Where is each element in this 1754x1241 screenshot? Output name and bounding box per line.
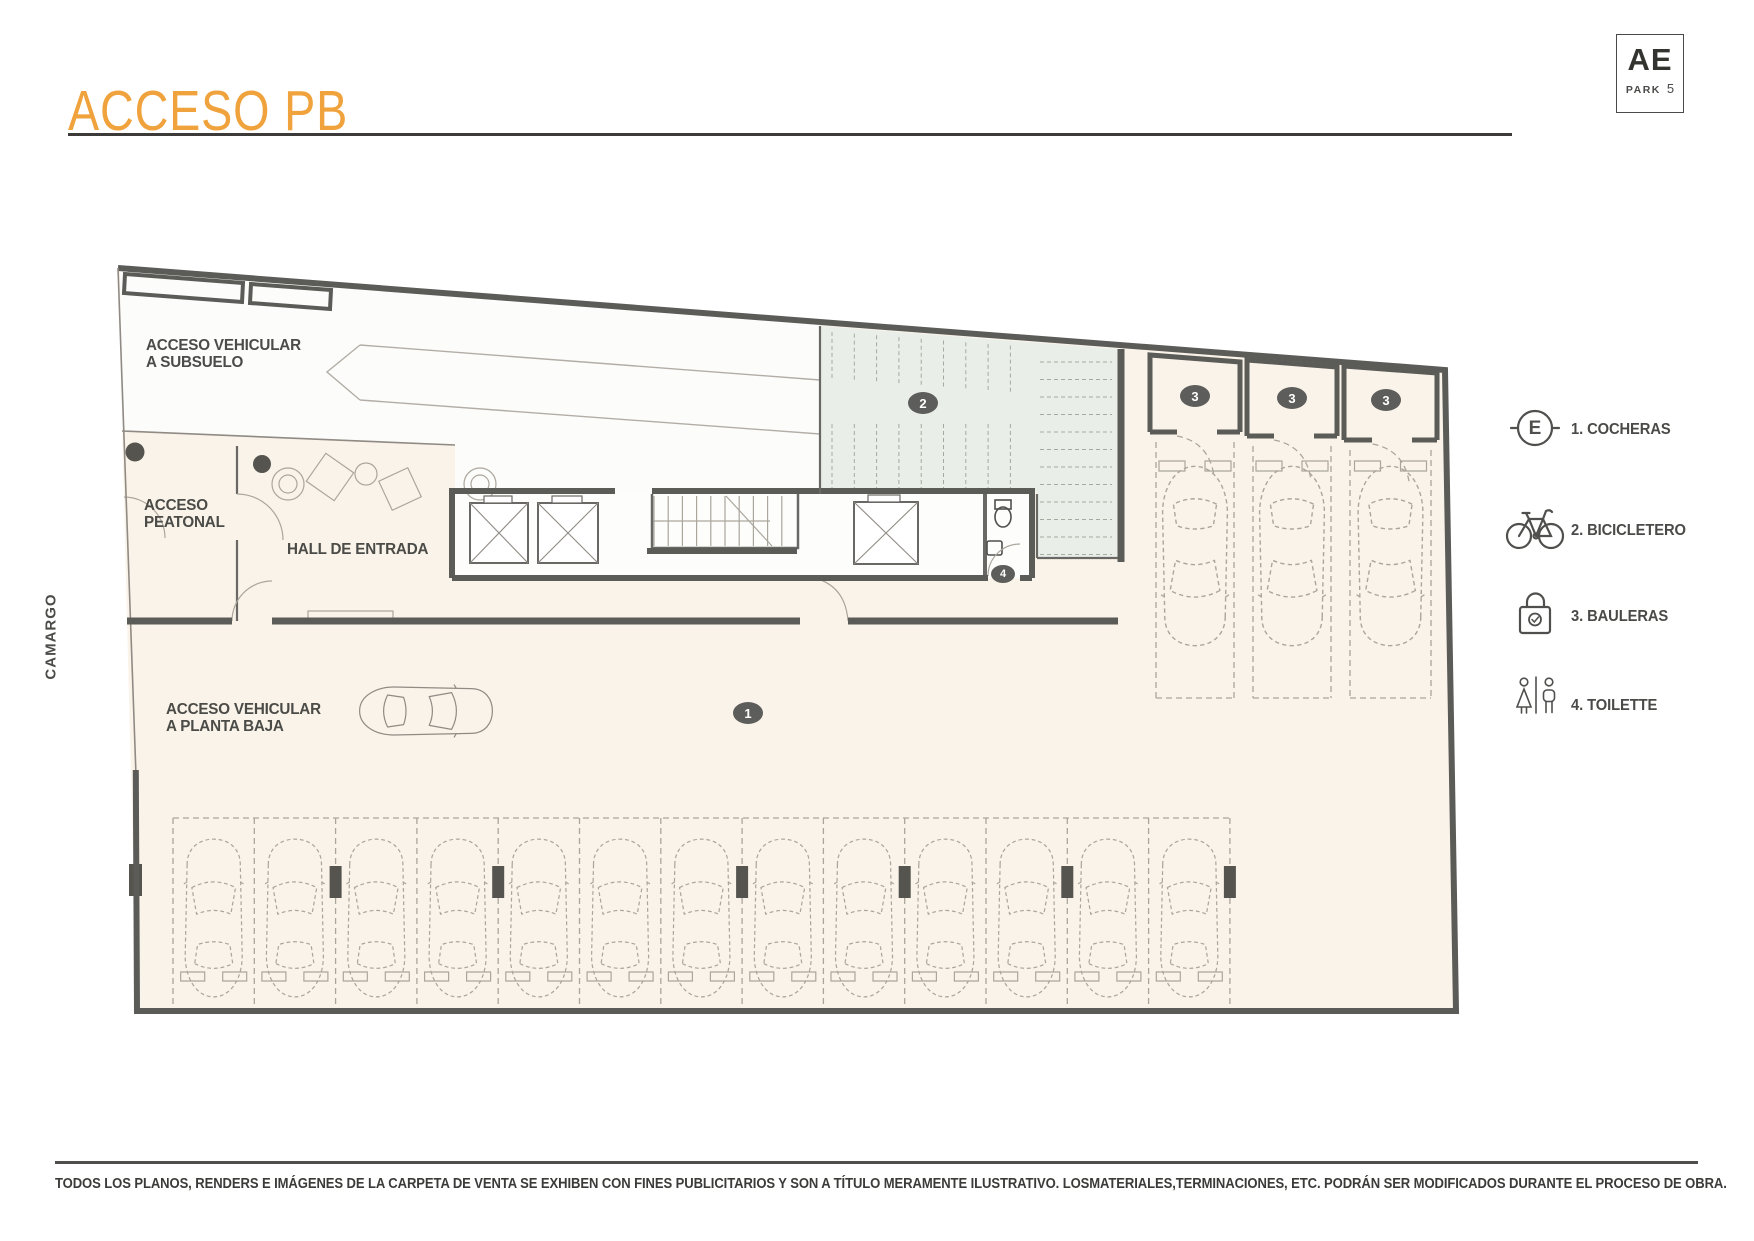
elevator-e-letter: E (1518, 417, 1552, 440)
badge-baulera: 3 (1371, 389, 1401, 411)
plan-label-ramp: ACCESO VEHICULAR A SUBSUELO (146, 337, 301, 372)
round-column (126, 443, 145, 462)
plan-label-hall: HALL DE ENTRADA (287, 541, 428, 558)
legend-item-bicicletero: 2. BICICLETERO (1571, 522, 1686, 540)
footer-divider (55, 1161, 1698, 1164)
street-name-label: CAMARGO (43, 582, 60, 692)
round-column (253, 455, 271, 473)
bicycle-icon (1507, 510, 1563, 548)
legend-item-bauleras: 3. BAULERAS (1571, 608, 1668, 626)
plan-label-pedestrian: ACCESO PEATONAL (144, 497, 225, 532)
badge-baulera: 3 (1277, 387, 1307, 409)
legend-icons (1507, 411, 1563, 713)
legend-item-toilette: 4. TOILETTE (1571, 697, 1657, 715)
badge-baulera: 3 (1180, 385, 1210, 407)
legend-item-cocheras: 1. COCHERAS (1571, 421, 1671, 439)
toilette-icon (1517, 677, 1555, 713)
footer-disclaimer: TODOS LOS PLANOS, RENDERS E IMÁGENES DE … (55, 1176, 1727, 1192)
site-area-fills (118, 268, 1456, 1011)
padlock-icon (1520, 594, 1550, 634)
badge-bicicletero: 2 (908, 392, 938, 414)
badge-toilette: 4 (991, 565, 1015, 583)
floor-plan-svg (0, 0, 1754, 1241)
plan-label-driveway: ACCESO VEHICULAR A PLANTA BAJA (166, 701, 321, 736)
badge-cocheras: 1 (733, 702, 763, 724)
